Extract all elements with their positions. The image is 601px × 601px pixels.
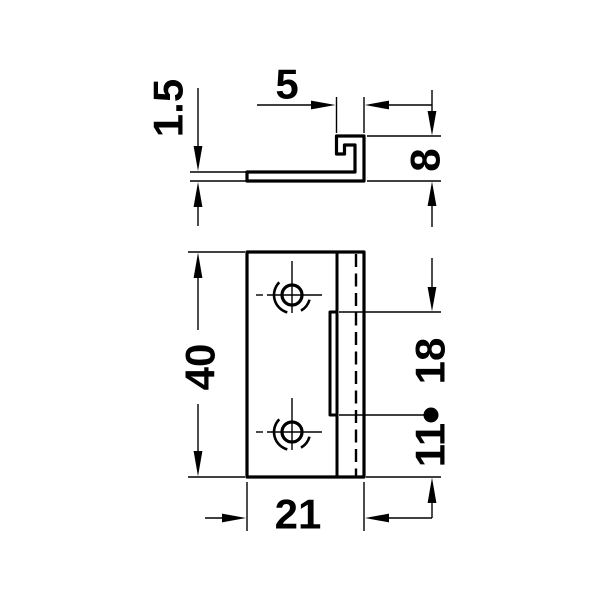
- dim-flange-length-arrow-down: [428, 287, 437, 311]
- dim-flange-offset-label: 11: [407, 423, 454, 467]
- dim-hook-width-label: 5: [275, 61, 298, 108]
- dim-plate-height-arrow-up: [194, 253, 203, 278]
- dim-hook-width: 5: [257, 61, 432, 134]
- dim-plate-width: 21: [205, 482, 432, 538]
- dim-hook-height-label: 8: [402, 148, 449, 171]
- dim-plate-height-arrow-down: [194, 451, 203, 476]
- dim-plate-height: 40: [177, 253, 224, 477]
- front-view: 40 21 18 11: [177, 252, 454, 538]
- dim-hook-height-arrow-down: [428, 111, 437, 136]
- dim-flange-chain: 18 11: [407, 258, 454, 518]
- dim-plate-width-arrow-right: [222, 514, 246, 523]
- dim-hook-height-arrow-up: [428, 182, 437, 207]
- dim-flange-offset-arrow-up: [428, 478, 437, 503]
- dim-thickness-label: 1.5: [145, 79, 192, 137]
- dim-plate-width-arrow-left: [365, 514, 389, 523]
- chain-dimension-dot: [424, 408, 439, 423]
- dim-thickness: 1.5: [145, 79, 247, 226]
- dim-thickness-arrow-down: [194, 146, 203, 171]
- profile-outline: [247, 136, 364, 181]
- dim-plate-height-label: 40: [177, 344, 224, 391]
- dim-flange-length-label: 18: [407, 338, 454, 385]
- dim-thickness-arrow-up: [194, 182, 203, 207]
- technical-drawing: 1.5 5 8: [0, 0, 601, 601]
- dim-hook-width-arrow-left: [365, 101, 389, 110]
- dim-hook-height: 8: [367, 90, 449, 227]
- drawing-canvas: 1.5 5 8: [0, 0, 601, 601]
- side-view: 1.5 5 8: [145, 61, 449, 228]
- dim-hook-width-arrow-right: [311, 101, 336, 110]
- dim-plate-width-label: 21: [275, 491, 322, 538]
